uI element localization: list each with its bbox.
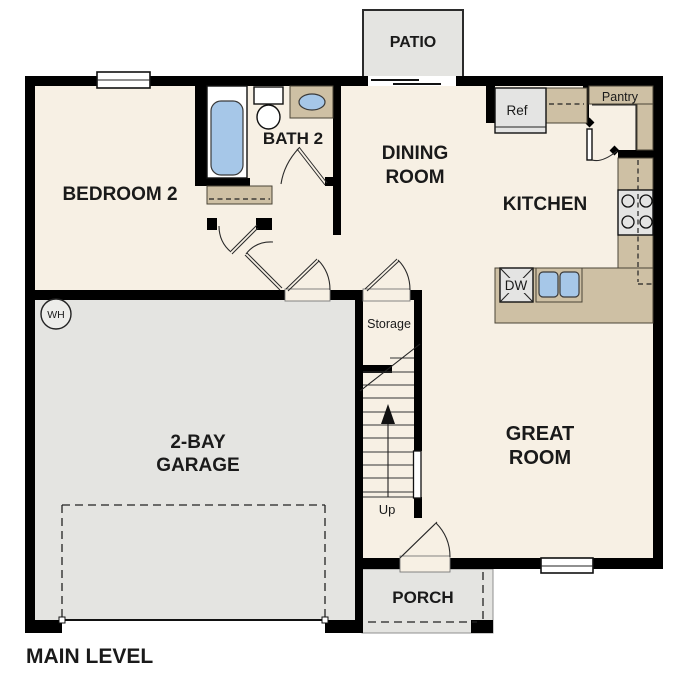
closet-stub-right [256,218,272,230]
pantry-shelf-right [637,104,653,150]
storage-door-sill [363,289,410,301]
garage-door-end-right [322,617,328,623]
bedroom-2-label: BEDROOM 2 [62,184,177,205]
floor-plan-page: BEDROOM 2 BATH 2 DINING ROOM KITCHEN GRE… [0,0,687,687]
storage-corner-wall [410,290,422,300]
bathtub [211,101,243,175]
toilet-tank [254,87,283,104]
garage-label-line2: GARAGE [156,455,239,476]
water-heater-label: WH [47,309,65,321]
refrigerator-label: Ref [506,103,527,118]
garage-top-wall [25,290,285,300]
dining-room-label-line1: DINING [382,143,449,164]
stair-right-wall [414,300,422,451]
front-door-sill [400,556,450,572]
stair-right-wall-lower [414,497,422,518]
great-room-label-line1: GREAT [506,423,575,445]
kitchen-label: KITCHEN [503,194,587,215]
closet-stub-left [207,218,217,230]
garage-label-line1: 2-BAY [170,432,226,453]
counter-by-fridge [546,88,587,123]
bedroom-right-wall [195,86,207,186]
stair-left-wall [355,290,363,633]
garage-bottom-wall-left [25,620,62,633]
pantry-door-leaf [587,129,592,160]
stair-handrail [414,451,422,498]
storage-label: Storage [367,317,411,331]
pantry-label: Pantry [602,90,639,104]
level-title: MAIN LEVEL [26,645,153,668]
dining-hall-wall [333,86,341,235]
closet-shelf [207,186,272,204]
bath-2-label: BATH 2 [263,129,323,148]
bedroom-closet [207,186,272,204]
toilet-bowl [257,105,280,129]
garage-door-end-left [59,617,65,623]
garage-bottom-wall-right [325,620,363,633]
tub-wall [195,178,250,186]
exterior-wall-left [25,76,35,633]
exterior-wall-right [653,76,663,569]
floor-plan-drawing: BEDROOM 2 BATH 2 DINING ROOM KITCHEN GRE… [0,0,687,687]
great-room-label-line2: ROOM [509,447,571,469]
patio-label: PATIO [390,34,437,51]
kitchen-wall-stub [486,86,495,123]
dining-room-label-line2: ROOM [385,167,444,188]
exterior-wall-bottom-right [593,558,663,569]
stairs-up-label: Up [379,502,396,517]
garage-entry-sill [285,289,330,301]
kitchen-sink-basin-right [560,272,579,297]
pantry-south-wall [618,150,653,158]
exterior-wall-bottom-mid [450,558,541,569]
bath-sink [299,94,325,110]
dishwasher-label: DW [505,278,528,293]
porch-label: PORCH [392,588,453,607]
kitchen-sink-basin-left [539,272,558,297]
